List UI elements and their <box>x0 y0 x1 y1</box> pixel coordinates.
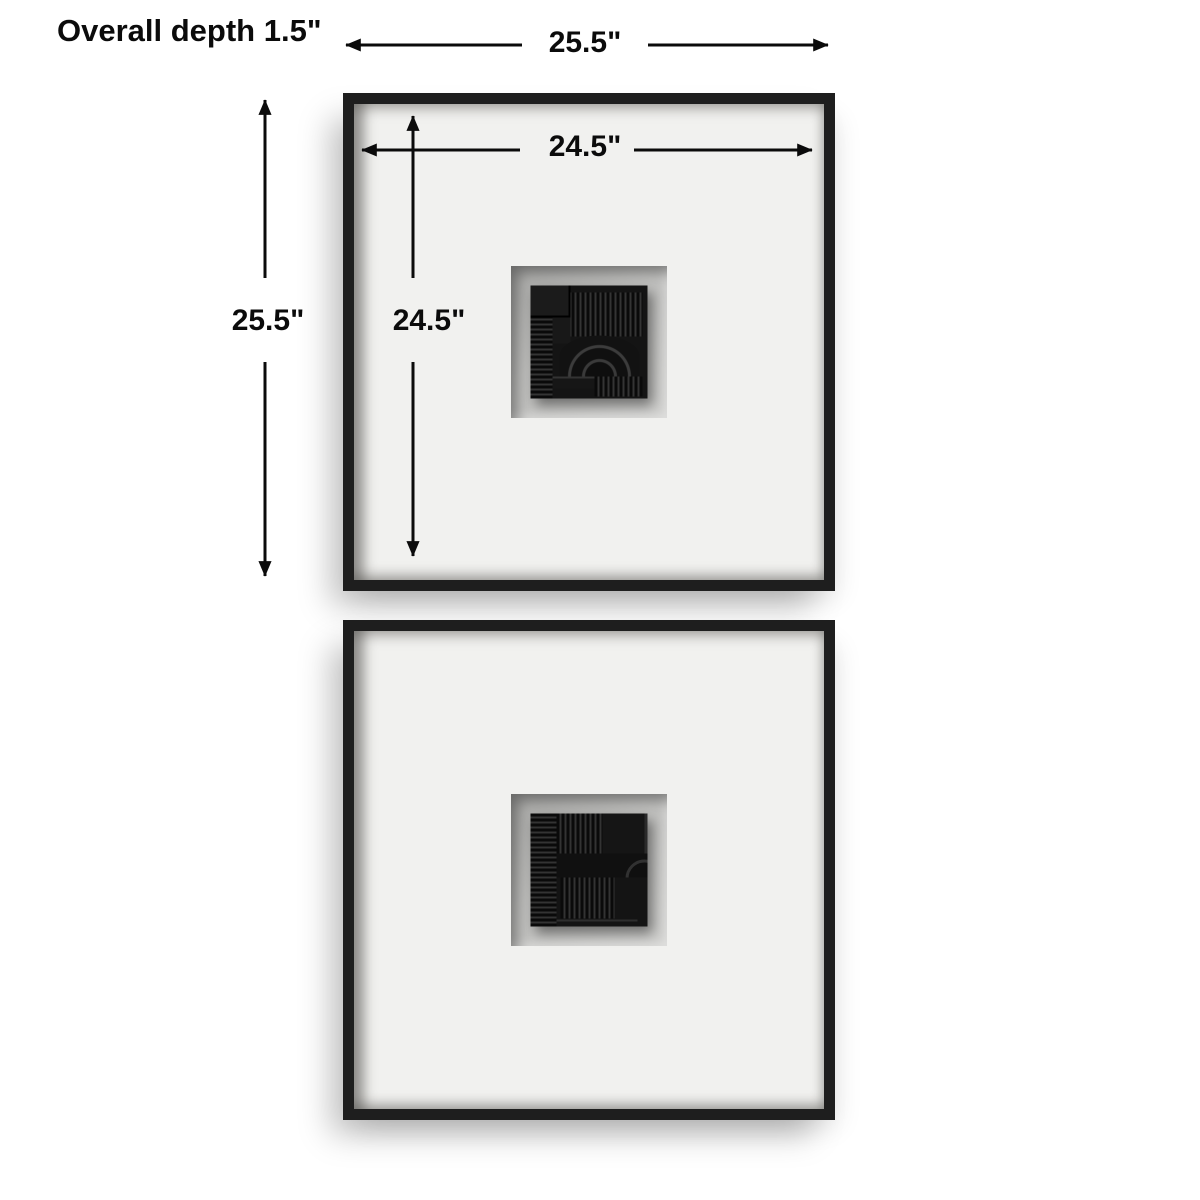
relief-bottom-right-ribs <box>595 377 643 397</box>
relief-mid-block <box>553 318 571 344</box>
shadowbox-frame-bottom <box>343 620 835 1120</box>
relief-vertical-ribs <box>567 293 643 337</box>
relief-horizontal-ribs <box>531 318 553 399</box>
inner-height-label: 24.5" <box>393 304 466 338</box>
shadowbox-frame-top <box>343 93 835 591</box>
shadowbox-recess-bottom <box>511 794 667 946</box>
product-dimension-diagram: Overall depth 1.5" 25.5" 24.5" 25.5" 24.… <box>0 0 1200 1200</box>
inner-width-label: 24.5" <box>549 130 622 164</box>
outer-width-label: 25.5" <box>549 26 622 60</box>
outer-height-label: 25.5" <box>232 304 305 338</box>
relief-bottom-vertical-ribs <box>561 878 615 919</box>
overall-depth-label: Overall depth 1.5" <box>57 13 322 49</box>
relief-sculpture-stripes <box>531 814 648 927</box>
mat-top <box>354 104 824 580</box>
relief-horizontal-ribs <box>531 814 557 927</box>
relief-arch-dome <box>560 336 640 377</box>
relief-top-vertical-ribs <box>557 814 603 854</box>
relief-corner-block <box>531 286 571 318</box>
relief-top-right-block <box>603 814 648 856</box>
relief-bottom-groove <box>557 920 638 922</box>
relief-sculpture-arch <box>531 286 648 399</box>
shadowbox-recess-top <box>511 266 667 418</box>
mat-bottom <box>354 631 824 1109</box>
